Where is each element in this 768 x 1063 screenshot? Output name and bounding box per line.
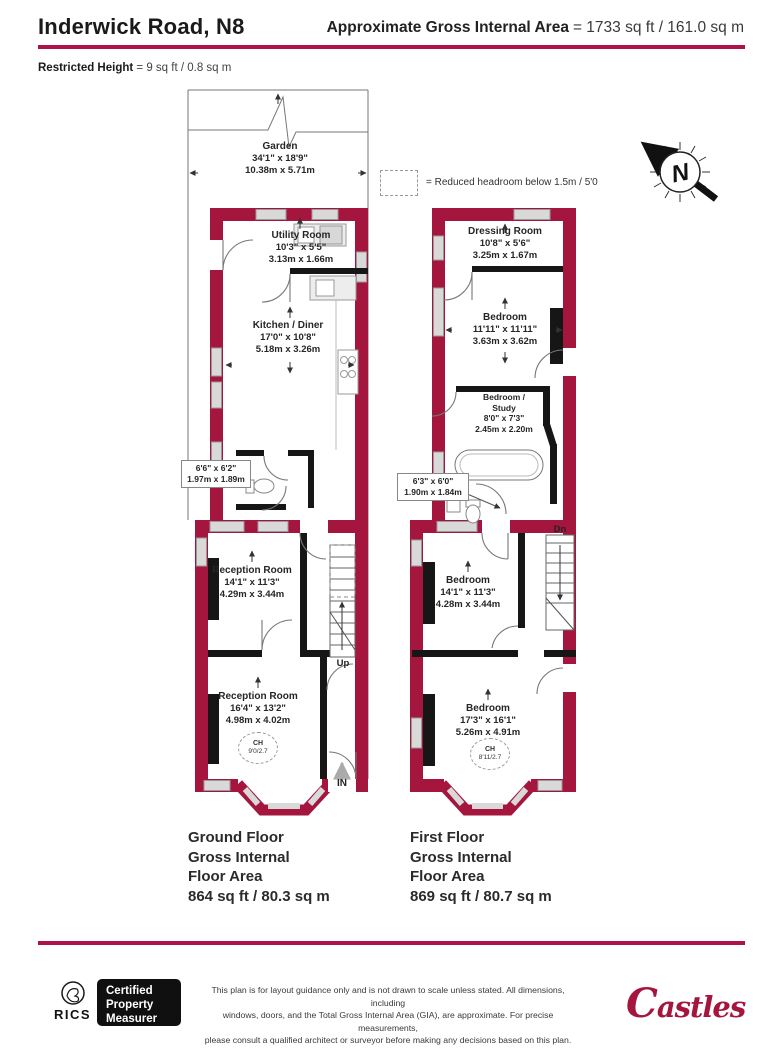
stairs-down-label: Dn bbox=[554, 524, 567, 535]
ff-ceiling-height-badge: CH 8'11/2.7 bbox=[470, 738, 510, 770]
gf-wc-callout: 6'6" x 6'2" 1.97m x 1.89m bbox=[181, 460, 251, 488]
garden-label: Garden 34'1" x 18'9" 10.38m x 5.71m bbox=[245, 141, 315, 177]
footer-rule bbox=[38, 941, 745, 945]
rics-crest-icon bbox=[62, 982, 84, 1004]
dressing-room-label: Dressing Room 10'8" x 5'6" 3.25m x 1.67m bbox=[468, 226, 542, 262]
first-floor-area-summary: First Floor Gross Internal Floor Area 86… bbox=[410, 828, 552, 906]
reduced-headroom-legend-swatch bbox=[380, 170, 418, 196]
north-compass-icon: N bbox=[649, 142, 716, 202]
kitchen-diner-label: Kitchen / Diner 17'0" x 10'8" 5.18m x 3.… bbox=[253, 320, 324, 356]
entrance-in-label: IN bbox=[337, 778, 347, 789]
certified-property-measurer-badge: Certified Property Measurer bbox=[97, 979, 181, 1026]
floorplan-page: Inderwick Road, N8 Approximate Gross Int… bbox=[0, 0, 768, 1063]
fence-break-icon bbox=[188, 97, 368, 147]
ff-stairs bbox=[546, 535, 574, 630]
ground-floor-area-summary: Ground Floor Gross Internal Floor Area 8… bbox=[188, 828, 330, 906]
gf-ceiling-height-badge: CH 9'0/2.7 bbox=[238, 732, 278, 764]
rics-label: RICS bbox=[54, 1007, 91, 1022]
ff-bath-callout: 6'3" x 6'0" 1.90m x 1.84m bbox=[397, 473, 469, 501]
reception-room-2-label: Reception Room 16'4" x 13'2" 4.98m x 4.0… bbox=[218, 691, 297, 727]
gf-stairs bbox=[330, 545, 355, 657]
bedroom-2-label: Bedroom 14'1" x 11'3" 4.28m x 3.44m bbox=[436, 575, 500, 611]
bedroom-1-label: Bedroom 11'11" x 11'11" 3.63m x 3.62m bbox=[473, 312, 537, 348]
castles-logo: Castles bbox=[626, 980, 745, 1027]
floorplan-canvas: N bbox=[0, 0, 768, 1063]
disclaimer-text: This plan is for layout guidance only an… bbox=[196, 984, 580, 1047]
stairs-up-label: Up bbox=[337, 658, 350, 669]
reception-room-1-label: Reception Room 14'1" x 11'3" 4.29m x 3.4… bbox=[212, 565, 291, 601]
bedroom-3-label: Bedroom 17'3" x 16'1" 5.26m x 4.91m bbox=[456, 703, 520, 739]
reduced-headroom-legend-text: = Reduced headroom below 1.5m / 5'0 bbox=[426, 177, 598, 188]
bedroom-study-label: Bedroom / Study 8'0" x 7'3" 2.45m x 2.20… bbox=[475, 392, 533, 434]
utility-room-label: Utility Room 10'3" x 5'5" 3.13m x 1.66m bbox=[269, 230, 333, 266]
